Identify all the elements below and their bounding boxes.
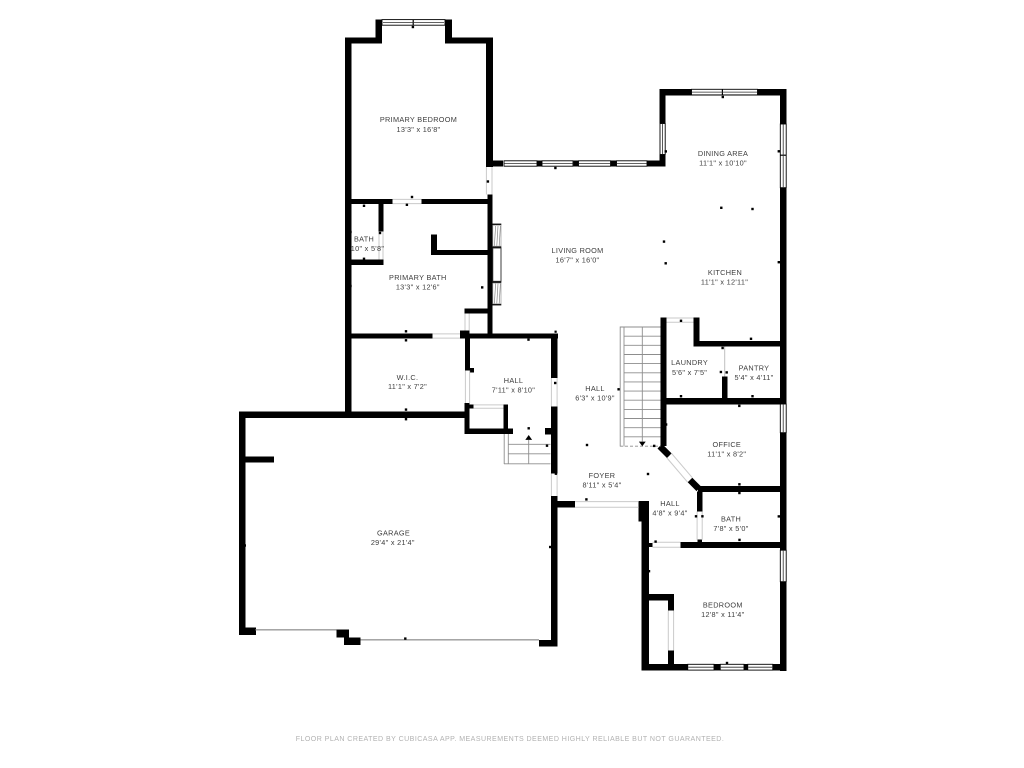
- svg-text:KITCHEN: KITCHEN: [708, 268, 742, 277]
- svg-text:11'1" x 7'2": 11'1" x 7'2": [388, 382, 427, 391]
- svg-text:13'3" x 12'6": 13'3" x 12'6": [396, 283, 440, 292]
- svg-text:8'11" x 5'4": 8'11" x 5'4": [582, 481, 621, 490]
- svg-text:29'4" x 21'4": 29'4" x 21'4": [371, 538, 415, 547]
- svg-text:HALL: HALL: [504, 376, 523, 385]
- svg-text:OFFICE: OFFICE: [713, 440, 742, 449]
- svg-text:BEDROOM: BEDROOM: [703, 600, 743, 609]
- svg-text:LIVING ROOM: LIVING ROOM: [552, 246, 604, 255]
- svg-text:10" x 5'8": 10" x 5'8": [351, 244, 385, 253]
- svg-text:5'4" x 4'11": 5'4" x 4'11": [734, 373, 773, 382]
- svg-text:11'1" x 8'2": 11'1" x 8'2": [707, 450, 746, 459]
- svg-text:DINING AREA: DINING AREA: [698, 149, 748, 158]
- svg-text:13'3" x 16'8": 13'3" x 16'8": [397, 125, 441, 134]
- svg-text:11'1" x 12'11": 11'1" x 12'11": [701, 278, 748, 287]
- svg-text:BATH: BATH: [354, 235, 374, 244]
- svg-text:16'7" x 16'0": 16'7" x 16'0": [556, 256, 600, 265]
- svg-text:HALL: HALL: [585, 384, 604, 393]
- svg-text:PRIMARY BATH: PRIMARY BATH: [389, 273, 447, 282]
- svg-text:11'1" x 10'10": 11'1" x 10'10": [699, 159, 747, 168]
- svg-text:PRIMARY BEDROOM: PRIMARY BEDROOM: [380, 115, 457, 124]
- svg-text:FLOOR PLAN CREATED BY CUBICASA: FLOOR PLAN CREATED BY CUBICASA APP. MEAS…: [296, 736, 725, 743]
- svg-text:HALL: HALL: [660, 499, 679, 508]
- svg-text:PANTRY: PANTRY: [739, 363, 770, 372]
- svg-text:GARAGE: GARAGE: [377, 528, 410, 537]
- svg-text:7'11" x 8'10": 7'11" x 8'10": [492, 386, 535, 395]
- svg-text:BATH: BATH: [721, 515, 741, 524]
- svg-text:4'8" x 9'4": 4'8" x 9'4": [652, 509, 687, 518]
- svg-text:7'8" x 5'0": 7'8" x 5'0": [713, 524, 748, 533]
- svg-text:FOYER: FOYER: [589, 471, 616, 480]
- svg-text:6'3" x 10'9": 6'3" x 10'9": [575, 394, 615, 403]
- svg-text:W.I.C.: W.I.C.: [397, 373, 419, 382]
- svg-text:LAUNDRY: LAUNDRY: [671, 358, 708, 367]
- svg-text:12'8" x 11'4": 12'8" x 11'4": [701, 610, 744, 619]
- svg-text:5'6" x 7'5": 5'6" x 7'5": [672, 368, 707, 377]
